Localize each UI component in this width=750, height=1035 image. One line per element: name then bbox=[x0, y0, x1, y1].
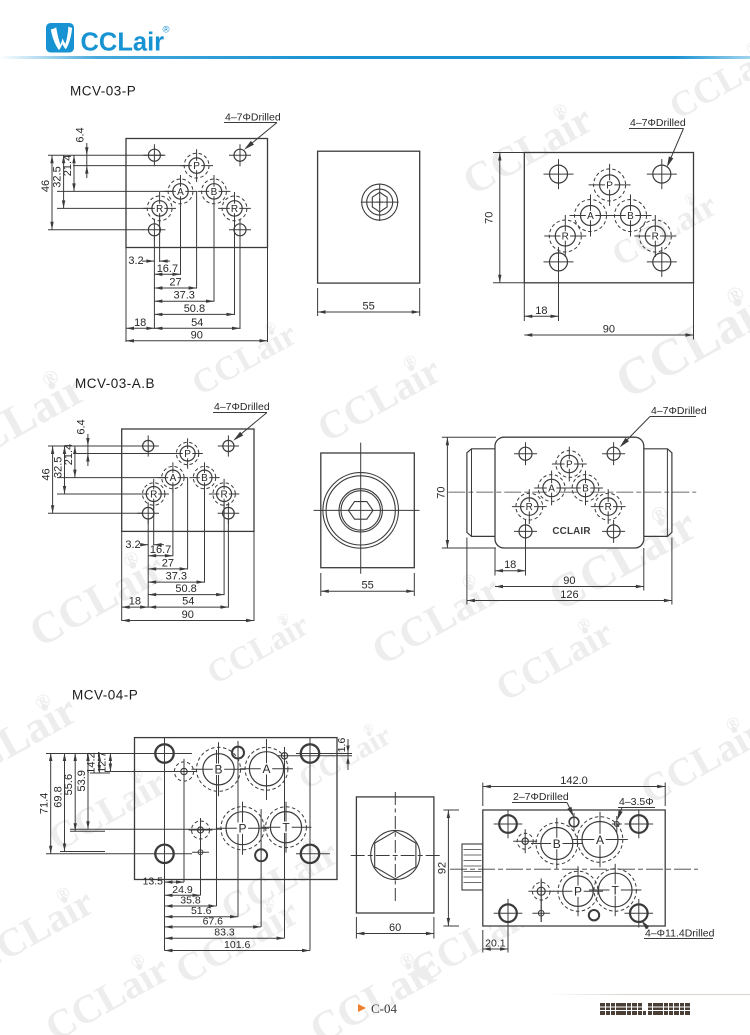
svg-text:R: R bbox=[652, 232, 659, 243]
svg-text:18: 18 bbox=[535, 305, 547, 317]
svg-text:P: P bbox=[184, 449, 191, 460]
svg-text:101.6: 101.6 bbox=[224, 939, 250, 951]
svg-text:71.4: 71.4 bbox=[39, 793, 51, 814]
svg-text:P: P bbox=[574, 885, 582, 899]
svg-text:A: A bbox=[177, 187, 184, 198]
svg-text:CCLAIR: CCLAIR bbox=[552, 526, 590, 537]
svg-text:4–7ΦDrilled: 4–7ΦDrilled bbox=[630, 117, 686, 129]
svg-text:4–3.5Φ: 4–3.5Φ bbox=[619, 796, 654, 808]
svg-text:A: A bbox=[262, 762, 270, 776]
svg-text:60: 60 bbox=[389, 922, 401, 934]
svg-text:B: B bbox=[214, 763, 222, 777]
svg-text:27: 27 bbox=[169, 277, 181, 289]
svg-text:90: 90 bbox=[563, 575, 575, 587]
svg-text:21.4: 21.4 bbox=[62, 155, 74, 176]
svg-text:P: P bbox=[238, 822, 246, 836]
svg-text:6.4: 6.4 bbox=[76, 419, 88, 434]
svg-text:CCLair: CCLair bbox=[456, 97, 601, 205]
svg-text:R: R bbox=[605, 502, 612, 513]
svg-text:P: P bbox=[606, 181, 613, 192]
svg-text:B: B bbox=[582, 484, 589, 495]
svg-text:27: 27 bbox=[162, 557, 174, 569]
svg-text:CCLair: CCLair bbox=[303, 946, 448, 1035]
svg-text:70: 70 bbox=[435, 486, 447, 498]
svg-text:16.7: 16.7 bbox=[150, 544, 171, 556]
svg-text:R: R bbox=[150, 490, 157, 501]
svg-text:4–7ΦDrilled: 4–7ΦDrilled bbox=[214, 401, 270, 413]
svg-text:50.8: 50.8 bbox=[184, 303, 205, 315]
svg-text:CCLair: CCLair bbox=[38, 946, 176, 1035]
svg-text:16.7: 16.7 bbox=[157, 263, 178, 275]
svg-text:CCLair: CCLair bbox=[21, 543, 173, 657]
svg-text:CCLair: CCLair bbox=[42, 762, 173, 860]
svg-text:92: 92 bbox=[436, 862, 448, 874]
svg-text:R: R bbox=[231, 204, 238, 215]
svg-text:B: B bbox=[627, 211, 634, 222]
svg-text:142.0: 142.0 bbox=[560, 775, 588, 787]
svg-text:18: 18 bbox=[134, 317, 146, 329]
svg-text:55: 55 bbox=[362, 301, 374, 313]
svg-text:55.6: 55.6 bbox=[63, 774, 75, 795]
svg-text:A: A bbox=[170, 473, 177, 484]
svg-text:3.2: 3.2 bbox=[125, 539, 140, 551]
svg-text:A: A bbox=[587, 211, 594, 222]
svg-text:12.7: 12.7 bbox=[97, 751, 109, 772]
svg-text:90: 90 bbox=[191, 329, 203, 341]
svg-text:4–7ΦDrilled: 4–7ΦDrilled bbox=[225, 112, 281, 124]
svg-text:P: P bbox=[193, 161, 200, 172]
svg-text:A: A bbox=[596, 833, 604, 847]
svg-text:R: R bbox=[156, 204, 163, 215]
svg-text:R: R bbox=[562, 232, 569, 243]
svg-text:®: ® bbox=[163, 25, 170, 36]
svg-text:46: 46 bbox=[40, 180, 52, 192]
svg-text:MCV-04-P: MCV-04-P bbox=[72, 688, 138, 703]
svg-text:B: B bbox=[211, 187, 218, 198]
svg-text:18: 18 bbox=[504, 559, 516, 571]
svg-text:MCV-03-P: MCV-03-P bbox=[70, 84, 136, 99]
svg-text:B: B bbox=[201, 473, 208, 484]
svg-text:70: 70 bbox=[484, 212, 496, 224]
svg-text:B: B bbox=[553, 837, 561, 851]
svg-text:6.4: 6.4 bbox=[75, 127, 87, 142]
svg-text:CCLair: CCLair bbox=[489, 612, 620, 710]
svg-text:4–Φ11.4Drilled: 4–Φ11.4Drilled bbox=[645, 928, 715, 940]
svg-text:13.5: 13.5 bbox=[143, 875, 164, 887]
svg-text:P: P bbox=[566, 460, 573, 471]
svg-text:67.6: 67.6 bbox=[203, 915, 224, 927]
svg-text:R: R bbox=[526, 502, 533, 513]
svg-text:R: R bbox=[220, 490, 227, 501]
svg-text:3.2: 3.2 bbox=[128, 255, 143, 267]
svg-text:A: A bbox=[548, 484, 555, 495]
svg-text:54: 54 bbox=[182, 596, 194, 608]
svg-text:126: 126 bbox=[560, 589, 578, 601]
svg-text:2–7ΦDrilled: 2–7ΦDrilled bbox=[513, 791, 569, 803]
svg-text:T: T bbox=[282, 821, 290, 835]
svg-text:83.3: 83.3 bbox=[214, 927, 235, 939]
svg-text:CCLair: CCLair bbox=[201, 607, 315, 692]
svg-text:90: 90 bbox=[603, 324, 615, 336]
svg-text:90: 90 bbox=[182, 609, 194, 621]
svg-text:CCLair: CCLair bbox=[81, 29, 165, 57]
svg-text:1.6: 1.6 bbox=[336, 738, 348, 753]
svg-text:CCLair: CCLair bbox=[662, 34, 750, 127]
svg-text:37.3: 37.3 bbox=[173, 290, 194, 302]
svg-text:CCLair: CCLair bbox=[0, 879, 101, 983]
svg-text:18: 18 bbox=[129, 596, 141, 608]
svg-text:T: T bbox=[612, 883, 620, 897]
svg-text:46: 46 bbox=[41, 468, 53, 480]
svg-text:54: 54 bbox=[191, 317, 203, 329]
svg-text:CCLair: CCLair bbox=[310, 347, 448, 451]
svg-text:CCLair: CCLair bbox=[293, 719, 396, 796]
svg-text:CCLair: CCLair bbox=[365, 567, 510, 675]
svg-text:50.8: 50.8 bbox=[175, 583, 196, 595]
svg-text:MCV-03-A.B: MCV-03-A.B bbox=[75, 376, 155, 391]
svg-text:21.4: 21.4 bbox=[63, 444, 75, 465]
svg-text:20.1: 20.1 bbox=[485, 938, 506, 950]
svg-text:55: 55 bbox=[361, 580, 373, 592]
svg-text:4–7ΦDrilled: 4–7ΦDrilled bbox=[651, 405, 707, 417]
svg-text:37.3: 37.3 bbox=[166, 571, 187, 583]
